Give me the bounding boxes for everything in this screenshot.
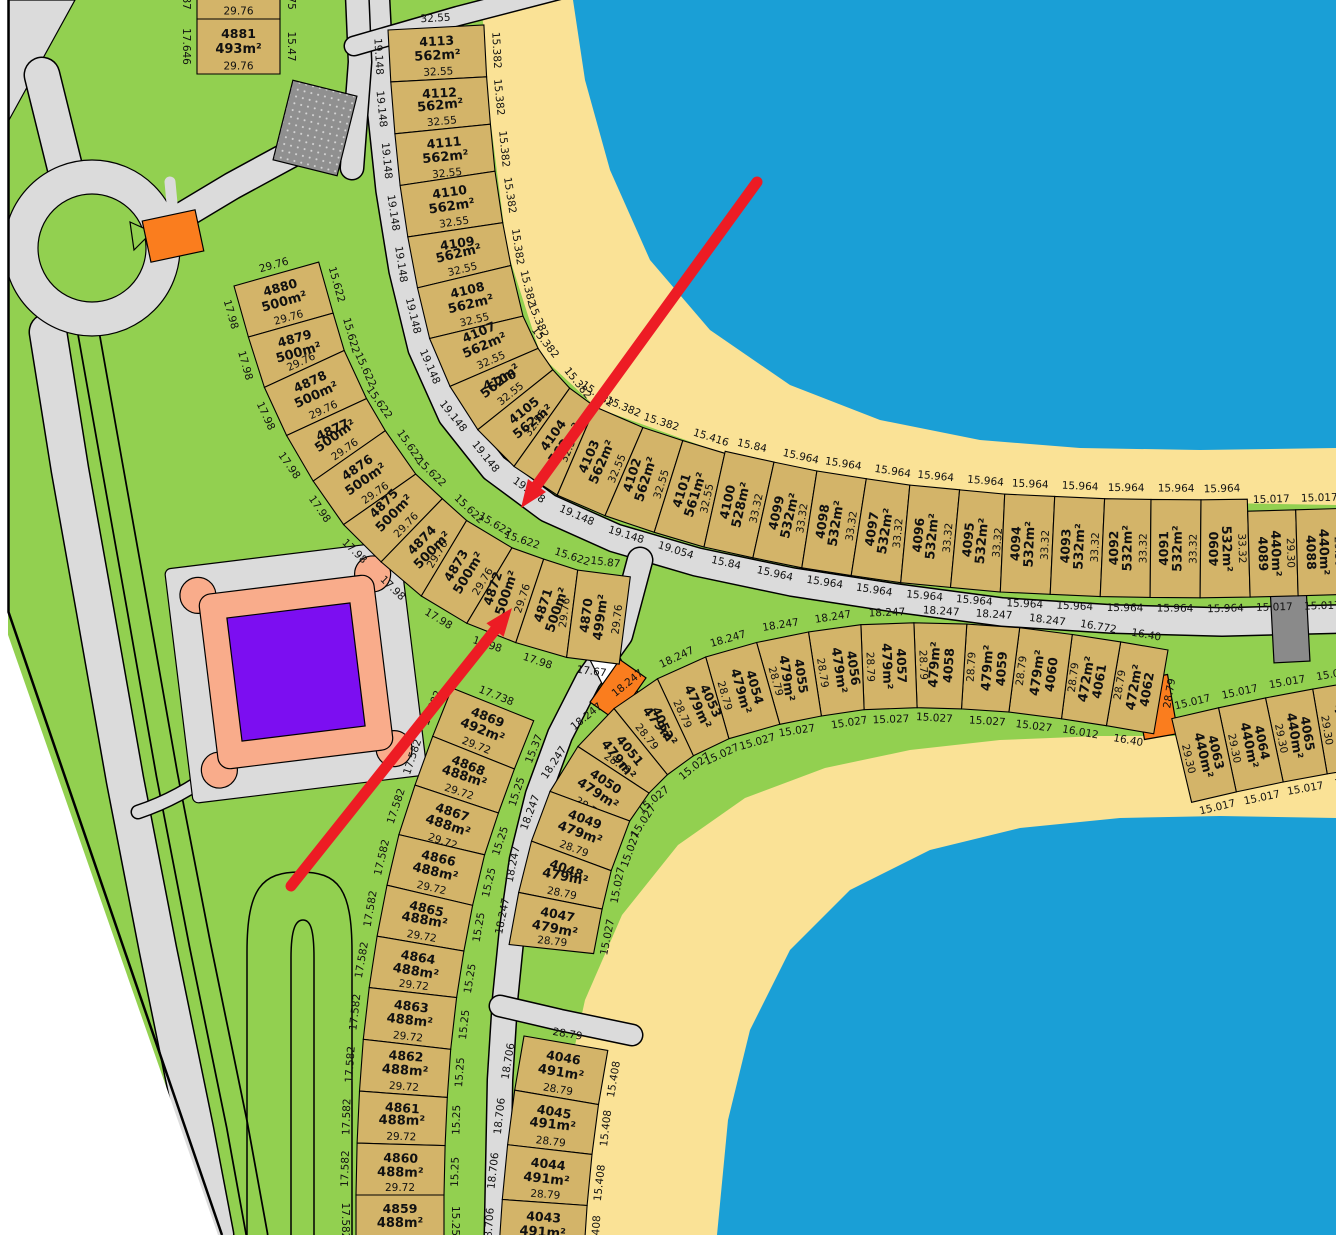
- masterplan-map: 4882492m²29.7615.37517.6874881493m²29.76…: [0, 0, 1336, 1235]
- plot-4059-outer-dim: 15.027: [969, 714, 1006, 728]
- plot-4057-area: 479m²: [878, 643, 895, 690]
- plot-4859-outer-dim: 15.25: [449, 1206, 461, 1235]
- plot-4057-inner-dim: 18.247: [868, 606, 905, 619]
- plot-4860-outer-dim: 15.25: [449, 1157, 462, 1187]
- plot-4057-number: 4057: [894, 648, 910, 683]
- building-core: [227, 603, 365, 741]
- plot-4862-outer-dim: 15.25: [453, 1057, 467, 1088]
- plot-4113-width-dim: 32.55: [423, 65, 454, 79]
- roundabout-island: [38, 194, 146, 302]
- plot-4092-area: 532m²: [1120, 525, 1135, 572]
- plot-4860-area: 488m²: [377, 1165, 424, 1181]
- plot-4092-outer-dim: 15.964: [1108, 482, 1145, 494]
- plot-4089-inner-dim: 15.017: [1256, 601, 1293, 614]
- plot-4094[interactable]: 4094532m²33.3215.96415.964: [1000, 477, 1054, 610]
- plot-4089-width-dim: 29.30: [1284, 538, 1297, 568]
- plot-4092-width-dim: 33.32: [1137, 533, 1149, 563]
- map-canvas: 4882492m²29.7615.37517.6874881493m²29.76…: [0, 0, 1336, 1235]
- plot-4859-area: 488m²: [377, 1216, 423, 1231]
- plot-4090[interactable]: 4090532m²33.3215.96415.964: [1200, 482, 1250, 615]
- plot-4091-area: 532m²: [1170, 525, 1185, 572]
- plot-4088-area: 440m²: [1315, 529, 1331, 576]
- plot-4059-area: 479m²: [979, 644, 997, 691]
- plot-4089[interactable]: 4089440m²29.3015.01715.017: [1248, 493, 1298, 614]
- plot-4859-inner-dim: 17.582: [339, 1203, 351, 1235]
- plot-4057-outer-dim: 15.027: [872, 713, 909, 726]
- plot-4092[interactable]: 4092532m²33.3215.96415.964: [1100, 482, 1151, 614]
- plot-4861-outer-dim: 15.25: [450, 1105, 463, 1135]
- plot-4089-area: 440m²: [1267, 530, 1283, 577]
- plot-4043-number: 4043: [526, 1208, 562, 1225]
- plot-4094-width-dim: 33.32: [1039, 530, 1052, 561]
- plot-4091-inner-dim: 15.964: [1157, 602, 1194, 614]
- plot-4090-area: 532m²: [1218, 525, 1234, 572]
- plot-4093-area: 532m²: [1071, 523, 1088, 570]
- plot-4113-start-dim: 32.55: [420, 12, 451, 26]
- plot-4882[interactable]: 4882492m²29.7615.37517.687: [180, 0, 297, 19]
- parcel-row-block-northwest: 4882492m²29.7615.37517.6874881493m²29.76…: [180, 0, 297, 74]
- plot-4059-width-dim: 28.79: [965, 652, 979, 683]
- plot-4088[interactable]: 4088440m²29.3015.01715.017: [1296, 492, 1336, 613]
- plot-4093[interactable]: 4093532m²33.3215.96415.964: [1050, 480, 1104, 614]
- utility-driveway: [170, 182, 173, 214]
- plot-4057-width-dim: 28.79: [863, 652, 876, 682]
- plot-4089-outer-dim: 15.017: [1253, 493, 1290, 506]
- plot-4091-outer-dim: 15.964: [1158, 482, 1195, 494]
- plot-4093-outer-dim: 15.964: [1061, 480, 1099, 494]
- plot-4043-outer-dim: 15.408: [589, 1215, 604, 1235]
- plot-4861[interactable]: 4861488m²29.7215.2517.582: [340, 1091, 463, 1146]
- plot-4882-inner-dim: 17.687: [180, 0, 192, 10]
- plot-4059-inner-dim: 18.247: [975, 608, 1012, 622]
- plot-4862-width-dim: 29.72: [388, 1080, 419, 1094]
- plot-4881-number: 4881: [221, 26, 256, 41]
- plot-4882-outer-dim: 15.375: [285, 0, 297, 10]
- plot-4861-width-dim: 29.72: [386, 1131, 416, 1144]
- left-margin: [0, 0, 8, 1235]
- plot-4092-number: 4092: [1106, 531, 1121, 566]
- plot-4095[interactable]: 4095532m²33.3215.96415.964: [951, 474, 1006, 609]
- plot-4881[interactable]: 4881493m²29.7615.4717.646: [180, 19, 297, 74]
- plot-4859-number: 4859: [383, 1201, 418, 1216]
- plot-4881-width-dim: 29.76: [223, 60, 253, 72]
- plot-4058-width-dim: 28.79: [916, 650, 929, 680]
- plot-4058-outer-dim: 15.027: [916, 711, 953, 725]
- plot-4043-inner-dim: 18.706: [482, 1207, 497, 1235]
- plot-4113-outer-dim: 15.382: [489, 32, 503, 69]
- plot-4860-inner-dim: 17.582: [339, 1150, 352, 1187]
- plot-4859[interactable]: 4859488m²29.7215.2517.582: [339, 1195, 461, 1235]
- plot-4094-area: 532m²: [1021, 521, 1038, 568]
- plot-4113-inner-dim: 19.148: [371, 38, 385, 75]
- plot-4058-inner-dim: 18.247: [922, 604, 959, 618]
- plot-4860-width-dim: 29.72: [385, 1182, 415, 1194]
- plot-4881-area: 493m²: [215, 42, 261, 57]
- plot-4113-area: 562m²: [414, 47, 461, 64]
- plot-4861-inner-dim: 17.582: [340, 1098, 353, 1135]
- plot-4091-width-dim: 33.32: [1187, 534, 1199, 564]
- plot-4860-number: 4860: [383, 1150, 418, 1166]
- plot-4860[interactable]: 4860488m²29.7215.2517.582: [339, 1143, 462, 1195]
- plot-4057[interactable]: 4057479m²28.7915.02718.247: [861, 606, 917, 726]
- plot-4090-width-dim: 33.32: [1235, 533, 1248, 563]
- plot-4088-outer-dim: 15.017: [1301, 492, 1336, 505]
- plot-4093-width-dim: 33.32: [1089, 532, 1102, 563]
- plot-4881-outer-dim: 15.47: [285, 31, 297, 61]
- plot-4090-inner-dim: 15.964: [1207, 602, 1244, 615]
- plot-4091[interactable]: 4091532m²33.3215.96415.964: [1150, 482, 1201, 614]
- plot-4881-inner-dim: 17.646: [180, 28, 192, 65]
- north-stub-road: [352, 0, 360, 168]
- plot-4090-outer-dim: 15.964: [1203, 482, 1240, 495]
- plot-4092-inner-dim: 15.964: [1107, 602, 1144, 614]
- plot-4093-inner-dim: 15.964: [1056, 600, 1094, 614]
- plot-4882-area: 492m²: [215, 0, 261, 2]
- plot-4088-inner-dim: 15.017: [1304, 600, 1336, 613]
- plot-4882-width-dim: 29.76: [223, 5, 253, 17]
- plot-4094-outer-dim: 15.964: [1012, 477, 1050, 491]
- plot-4861-area: 488m²: [378, 1113, 425, 1129]
- plot-4091-number: 4091: [1156, 531, 1171, 566]
- plot-4044-width-dim: 28.79: [530, 1188, 561, 1202]
